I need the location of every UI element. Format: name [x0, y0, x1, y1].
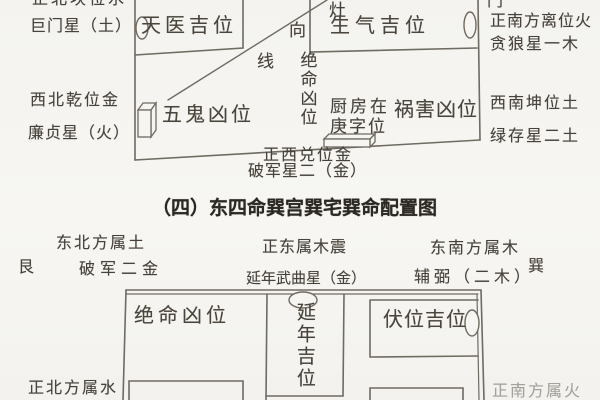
oval-marker-icon	[464, 12, 476, 38]
upper-house-right-wall	[478, 0, 480, 140]
lower-se-direction-label: 东南方属木	[430, 240, 520, 258]
lower-s-direction-label: 正南方属火	[492, 383, 582, 400]
upper-sw-star-label: 绿存星二土	[490, 128, 580, 146]
lower-n-direction-label: 正北方属水	[28, 380, 118, 398]
lower-fuwei-room-label: 伏位吉位	[383, 309, 467, 332]
lower-ne-trigram-label: 艮	[18, 259, 36, 277]
section-title: （四）东四命巽宫巽宅巽命配置图	[152, 198, 437, 220]
lower-left-inner-room	[129, 381, 243, 400]
upper-w-star-label: 廉贞星（火）	[28, 125, 130, 143]
upper-nw-direction-label: 正北坎位水	[32, 0, 127, 9]
scanned-fengshui-page: 正北坎位水 巨门星（土） 天医吉位 灶 向 线 生气吉位 门 正南方离位火 贪狼…	[0, 0, 600, 400]
lower-se-star-label: 辅弼（二木）	[414, 269, 534, 287]
lower-e-star-label: 延年武曲星（金）	[246, 270, 366, 287]
upper-jueming-vertical-label: 绝命凶位	[297, 51, 317, 127]
lower-jueming-room-label: 绝命凶位	[134, 305, 230, 328]
lower-house-left-wall	[123, 290, 126, 400]
tianyi-room-label: 天医吉位	[141, 15, 237, 38]
lower-right-inner-room	[370, 388, 463, 400]
lower-e-direction-label: 正东属木震	[262, 239, 347, 257]
lower-yannian-vertical-label: 延年吉位	[293, 302, 315, 390]
stove-line-char-xiang: 向	[289, 21, 308, 41]
door-label: 门	[487, 0, 505, 11]
kitchen-note-line1: 厨房在	[330, 97, 390, 117]
lower-yannian-strip-right	[343, 294, 344, 396]
lower-ne-direction-label: 东北方属土	[56, 235, 146, 253]
upper-w-direction-label: 西北乾位金	[30, 92, 120, 110]
stove-line-char-xian: 线	[257, 52, 276, 72]
lower-house-right-wall	[481, 290, 484, 400]
lower-house-right-wall-inner	[477, 294, 479, 400]
lower-ne-star-label: 破军二金	[79, 261, 163, 279]
lower-yannian-strip-left	[266, 294, 267, 400]
huohai-room-label: 祸害凶位	[394, 99, 478, 122]
upper-ne-direction-label: 正南方离位火	[490, 13, 592, 31]
left-edge-scan-artifact: ）	[0, 126, 11, 144]
upper-sw-direction-label: 西南坤位土	[490, 95, 580, 113]
upper-ne-star-label: 贪狼星一木	[490, 36, 580, 54]
wugui-room-label: 五鬼凶位	[162, 104, 254, 127]
kitchen-note-line2: 庚字位	[330, 117, 387, 137]
upper-nw-star-label: 巨门星（土）	[30, 18, 132, 36]
oval-marker-icon	[465, 310, 479, 336]
stove-box-icon	[138, 103, 156, 137]
upper-s-star-label: 破军星二（金）	[248, 163, 367, 181]
shengqi-room-label: 生气吉位	[330, 15, 430, 38]
